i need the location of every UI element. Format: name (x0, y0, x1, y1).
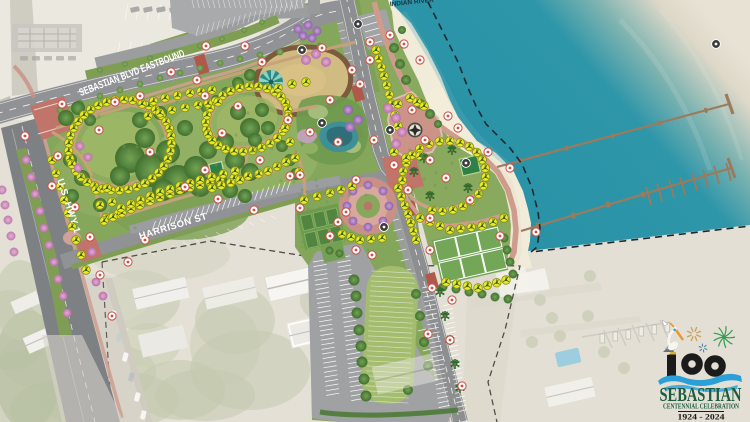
svg-text:CENTENNIAL CELEBRATION: CENTENNIAL CELEBRATION (663, 403, 739, 411)
svg-text:1924 - 2024: 1924 - 2024 (678, 413, 725, 422)
